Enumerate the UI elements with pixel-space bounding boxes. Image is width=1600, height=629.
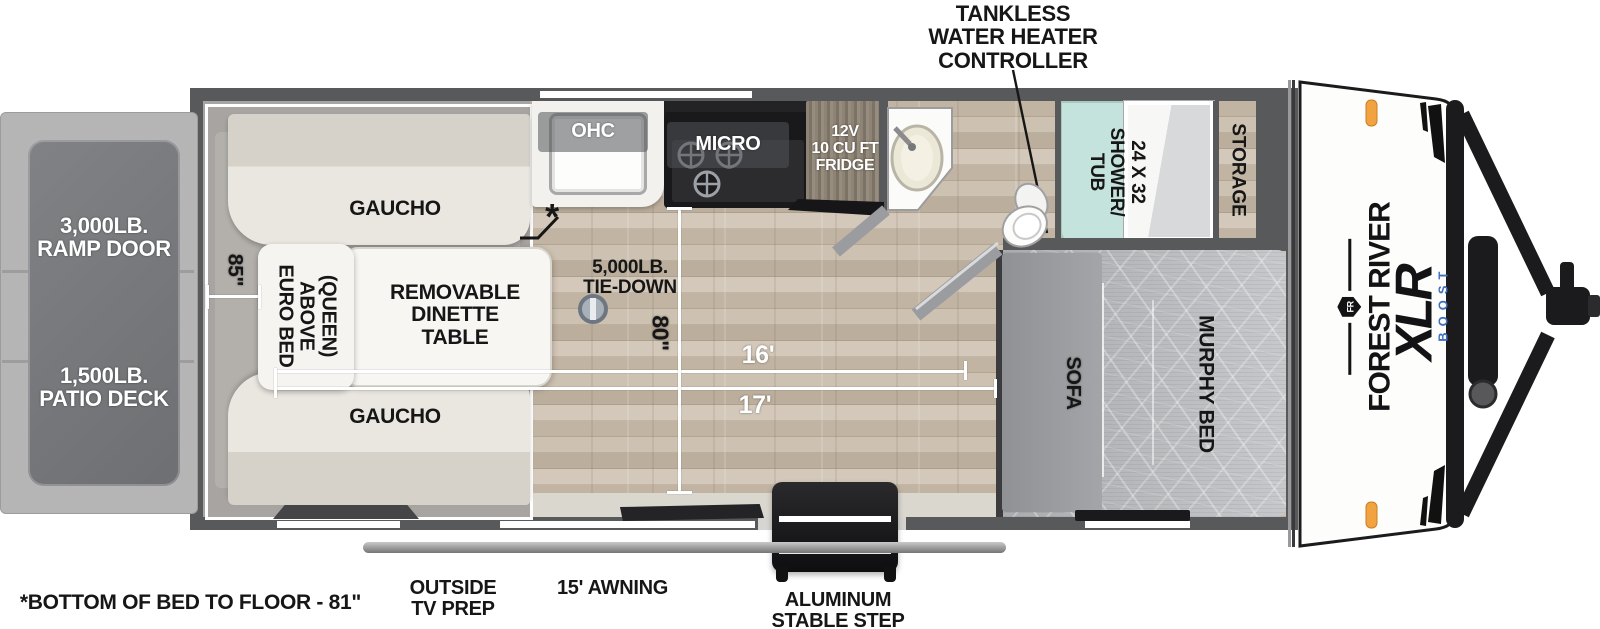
dim-85-cap-left [206, 285, 209, 309]
dinette-line: REMOVABLE [355, 282, 555, 304]
dinette-table-label: REMOVABLE DINETTE TABLE [355, 282, 555, 349]
euro-bed-line: EURO BED [274, 264, 296, 367]
svg-text:FR: FR [1345, 301, 1355, 313]
dim-80-line [678, 209, 681, 493]
dinette-line: TABLE [355, 327, 555, 349]
stable-step-line: STABLE STEP [758, 611, 918, 629]
tie-down-line: 5,000LB. [570, 258, 690, 278]
tankless-line: TANKLESS [873, 2, 1153, 25]
outside-tv-line: TV PREP [393, 599, 513, 620]
shower-line: SHOWER/ [1106, 128, 1127, 217]
dim-16-label: 16' [708, 342, 808, 369]
outside-tv-line: OUTSIDE [393, 578, 513, 599]
floorplan-diagram: TANKLESS WATER HEATER CONTROLLER 3,000LB… [0, 0, 1600, 629]
dim-17-cap-right [994, 379, 997, 398]
bottom-bed-note: *BOTTOM OF BED TO FLOOR - 81" [18, 592, 363, 614]
fridge-line: 10 CU FT [806, 141, 884, 158]
dim-17-label: 17' [705, 392, 805, 419]
dim-shared-cap-left [274, 368, 277, 398]
brand-logo-row: FR [1337, 239, 1361, 375]
dim-85-line [209, 295, 259, 298]
dim-16-line [276, 370, 966, 373]
tankless-line: CONTROLLER [873, 49, 1153, 72]
gaucho-bottom-label: GAUCHO [305, 406, 485, 428]
euro-bed-line: ABOVE [295, 281, 317, 351]
patio-deck-label: 1,500LB. PATIO DECK [28, 364, 180, 411]
model-name: XLR [1392, 261, 1439, 364]
micro-label: MICRO [667, 134, 789, 155]
tie-down-line: TIE-DOWN [570, 278, 690, 298]
awning-label: 15' AWNING [540, 578, 685, 599]
stable-step-line: ALUMINUM [758, 590, 918, 611]
shower-line: TUB [1085, 153, 1106, 191]
ohc-label: OHC [538, 121, 648, 142]
dim-16-cap-right [964, 361, 967, 380]
tie-down-label: 5,000LB. TIE-DOWN [570, 258, 690, 298]
patio-deck-line: 1,500LB. [28, 364, 180, 387]
outside-tv-prep-label: OUTSIDE TV PREP [393, 578, 513, 620]
fridge-line: FRIDGE [806, 158, 884, 175]
dim-80-cap-bottom [667, 491, 692, 494]
bed-note-asterisk: * [540, 198, 564, 236]
ramp-door-line: 3,000LB. [28, 214, 180, 237]
tankless-callout: TANKLESS WATER HEATER CONTROLLER [873, 2, 1153, 72]
logo-dash [1348, 239, 1351, 291]
fridge-line: 12V [806, 124, 884, 141]
dim-17-line [276, 387, 996, 390]
dim-80-cap-top [667, 207, 692, 210]
fr-shield-icon: FR [1337, 297, 1361, 317]
dim-85-cap-right [258, 285, 261, 309]
dinette-line: DINETTE [355, 304, 555, 326]
patio-deck-line: PATIO DECK [28, 387, 180, 410]
fridge-label: 12V 10 CU FT FRIDGE [806, 124, 884, 175]
shower-line: 24 X 32 [1126, 140, 1147, 203]
stable-step-label: ALUMINUM STABLE STEP [758, 590, 918, 629]
logo-dash [1348, 323, 1351, 375]
tankless-line: WATER HEATER [873, 25, 1153, 48]
ramp-door-line: RAMP DOOR [28, 237, 180, 260]
ramp-door-label: 3,000LB. RAMP DOOR [28, 214, 180, 261]
gaucho-top-label: GAUCHO [305, 198, 485, 220]
euro-bed-line: (QUEEN) [317, 275, 339, 357]
